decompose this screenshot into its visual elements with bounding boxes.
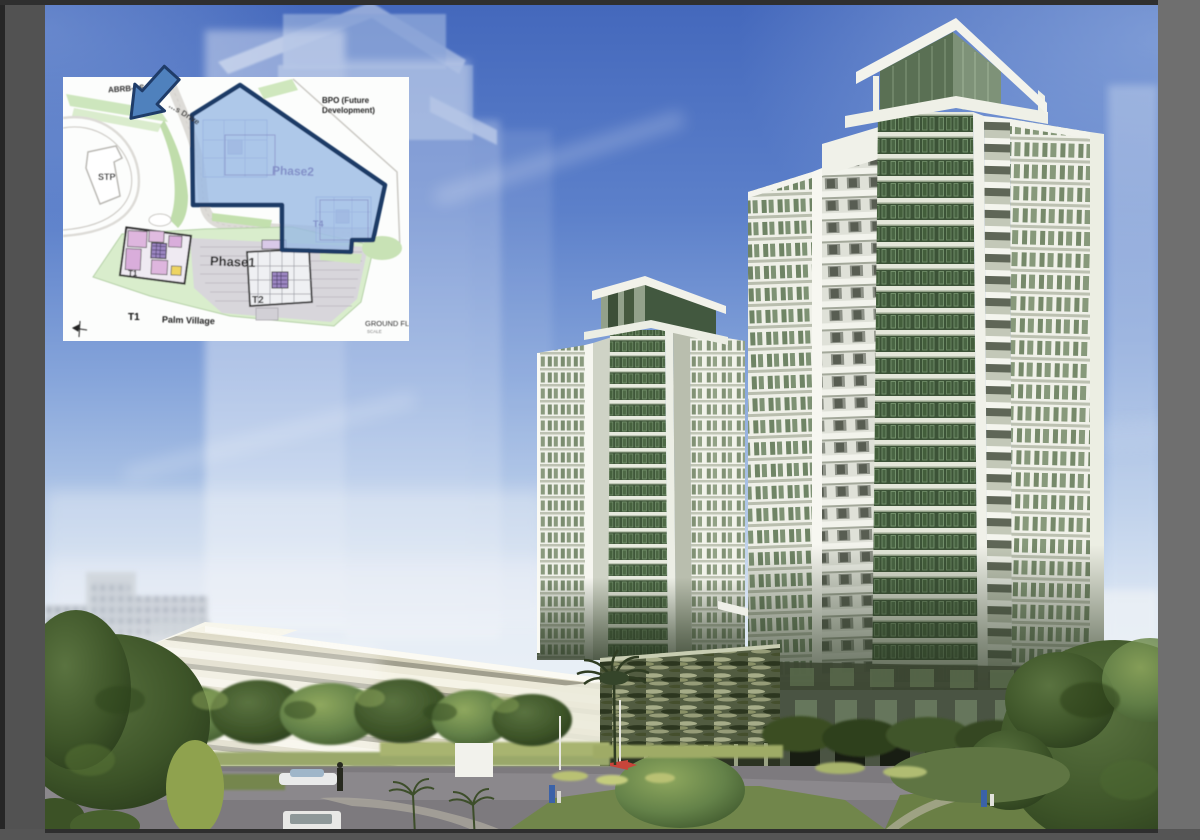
svg-text:T4: T4 [313,219,324,229]
svg-text:Development): Development) [322,106,375,115]
svg-text:T2: T2 [252,295,264,306]
svg-text:Palm Village: Palm Village [162,314,215,326]
svg-text:Phase2: Phase2 [272,163,315,178]
svg-text:T1: T1 [128,269,138,279]
svg-text:STP: STP [98,172,116,182]
svg-text:BPO (Future: BPO (Future [322,96,370,105]
svg-text:Phase1: Phase1 [210,253,256,270]
svg-text:SCALE: SCALE [367,329,382,334]
svg-text:T1: T1 [128,312,140,323]
